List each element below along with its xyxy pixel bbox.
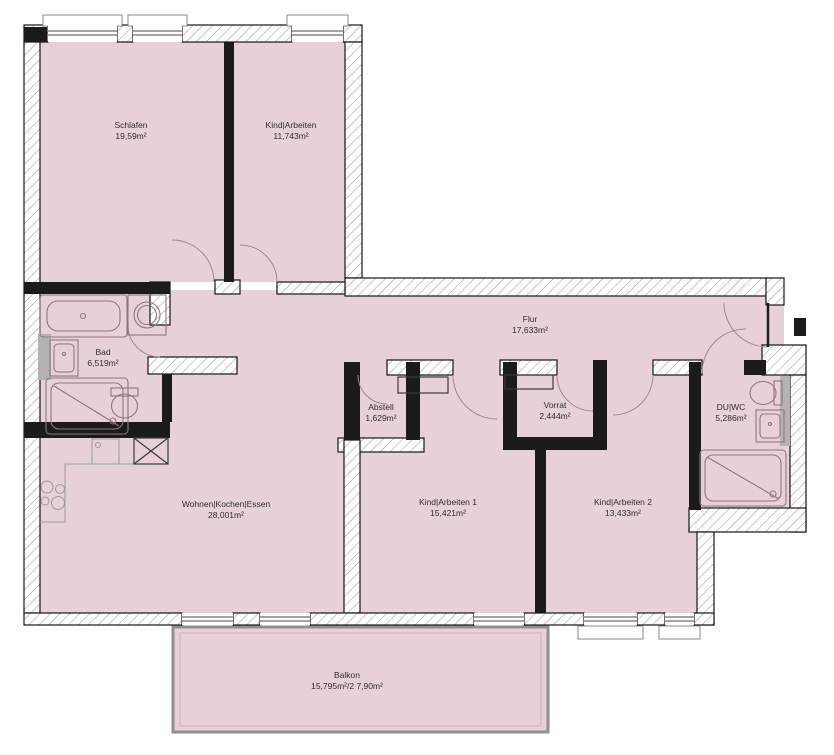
room-label-kind-arbeiten-1: Kind|Arbeiten 1 15,421m² (419, 497, 477, 519)
room-label-kind-arbeiten-2: Kind|Arbeiten 2 13,433m² (594, 497, 652, 519)
window-sill (43, 15, 122, 26)
window-sill (128, 15, 187, 26)
window-sill (578, 626, 643, 639)
room-label-bad: Bad 6,519m² (87, 347, 118, 369)
floorplan-drawing (0, 0, 834, 755)
window-sill (659, 626, 700, 639)
room-area-schlafen-kind (40, 42, 345, 282)
room-label-kind-arbeiten: Kind|Arbeiten 11,743m² (266, 120, 317, 142)
room-areas (40, 42, 790, 613)
duct-niche (38, 334, 51, 380)
room-label-vorrat: Vorrat 2,444m² (539, 400, 570, 422)
room-label-duwc: DU|WC 5,286m² (715, 402, 746, 424)
window-sill (287, 15, 348, 26)
floorplan-page: Schlafen 19,59m² Kind|Arbeiten 11,743m² … (0, 0, 834, 755)
room-area-duwc (701, 362, 790, 508)
room-label-balkon: Balkon 15,795m²/2 7,90m² (311, 670, 383, 692)
room-label-flur: Flur 17,633m² (512, 314, 548, 336)
room-label-schlafen: Schlafen 19,59m² (114, 120, 147, 142)
room-label-abstell: Abstell 1,629m² (365, 402, 396, 424)
room-label-wohnen-kochen-essen: Wohnen|Kochen|Essen 28,001m² (182, 499, 270, 521)
